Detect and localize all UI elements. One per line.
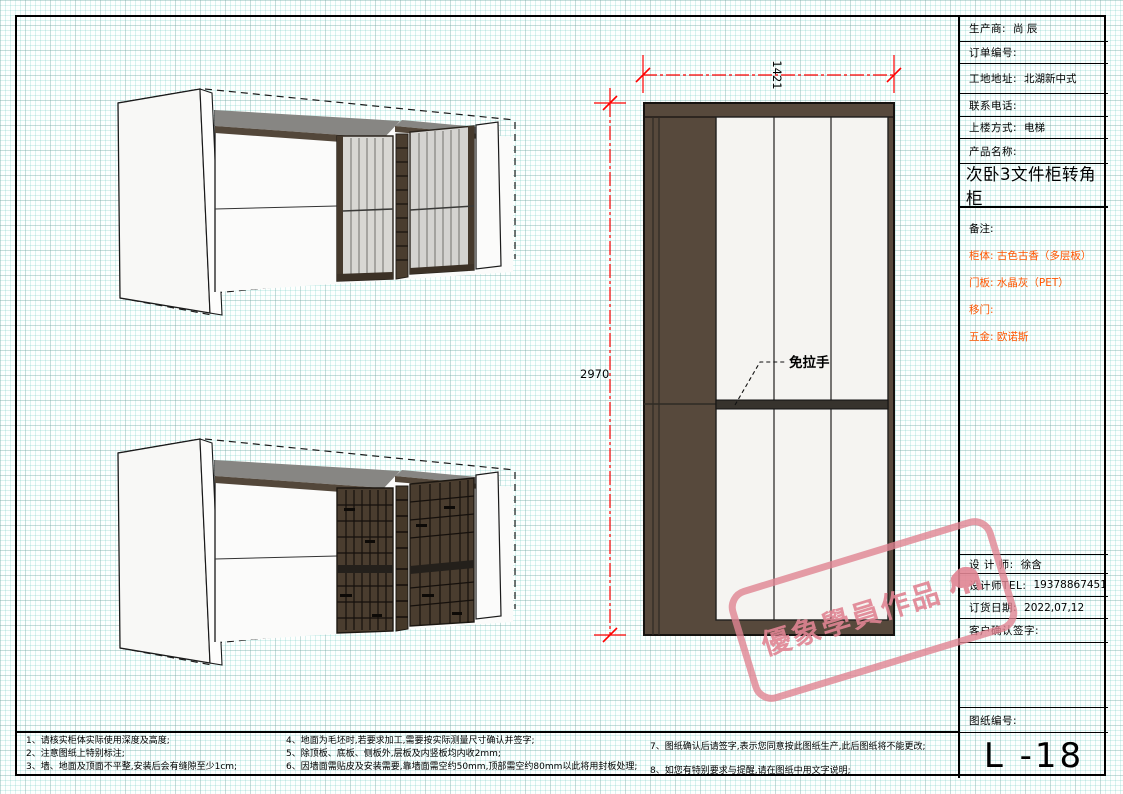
field-order-date: 订货日期: 2022,07,12 xyxy=(960,597,1108,619)
notes-divider-line xyxy=(15,731,960,733)
note-line: 5、除顶板、底板、侧板外,层板及内竖板均内收2mm; xyxy=(286,748,637,761)
field-designer-tel: 设计师TEL: 19378867451 xyxy=(960,574,1108,597)
note-line: 8、如您有特别要求与提醒,请在图纸中用文字说明; xyxy=(650,759,925,783)
dimension-lines: 2970 1421 xyxy=(560,40,930,665)
height-dimension: 2970 xyxy=(580,367,609,381)
notes-column-2: 4、地面为毛坯时,若要求加工,需要按实际测量尺寸确认并签字; 5、除顶板、底板、… xyxy=(286,735,637,773)
remark-door-panel: 门板: 水晶灰（PET） xyxy=(969,275,1102,290)
note-line: 4、地面为毛坯时,若要求加工,需要按实际测量尺寸确认并签字; xyxy=(286,735,637,748)
field-order-no: 订单编号: xyxy=(960,42,1108,64)
product-title: 次卧3文件柜转角柜 xyxy=(960,164,1108,208)
perspective-view-doors xyxy=(88,76,522,328)
field-site-address: 工地地址: 北湖新中式 xyxy=(960,64,1108,94)
field-phone: 联系电话: xyxy=(960,94,1108,117)
remarks-block: 备注: 柜体: 古色古香（多层板） 门板: 水晶灰（PET） 移门: 五金: 欧… xyxy=(960,208,1108,555)
title-block: 生产商: 尚 辰 订单编号: 工地地址: 北湖新中式 联系电话: 上楼方式: 电… xyxy=(958,15,1108,778)
notes-column-3: 7、图纸确认后请签字,表示您同意按此图纸生产,此后图纸将不能更改; 8、如您有特… xyxy=(650,735,925,783)
perspective-view-shelves xyxy=(88,426,522,678)
notes-column-1: 1、请核实柜体实际使用深度及高度; 2、注意图纸上特别标注; 3、墙、地面及顶面… xyxy=(26,735,237,773)
field-label: 联系电话: xyxy=(969,98,1017,113)
field-label: 上楼方式: xyxy=(969,120,1017,135)
width-dimension: 1421 xyxy=(770,60,784,89)
field-label: 订单编号: xyxy=(969,45,1017,60)
remark-sliding-door: 移门: xyxy=(969,302,1102,317)
signature-space xyxy=(960,643,1108,708)
note-line: 6、因墙面需贴皮及安装需要,靠墙面需空约50mm,顶部需空约80mm以此将用封板… xyxy=(286,761,637,774)
field-label: 工地地址: xyxy=(969,71,1017,86)
remark-hardware: 五金: 欧诺斯 xyxy=(969,329,1102,344)
field-manufacturer: 生产商: 尚 辰 xyxy=(960,15,1108,42)
remarks-label: 备注: xyxy=(969,221,1102,236)
note-line: 2、注意图纸上特别标注; xyxy=(26,748,237,761)
note-line: 3、墙、地面及顶面不平整,安装后会有缝隙至少1cm; xyxy=(26,761,237,774)
field-label: 生产商: xyxy=(969,21,1006,36)
field-designer: 设 计 师: 徐含 xyxy=(960,555,1108,574)
field-drawing-no: 图纸编号: xyxy=(960,708,1108,733)
field-value: 北湖新中式 xyxy=(1024,71,1077,86)
field-value: 电梯 xyxy=(1024,120,1045,135)
field-label: 产品名称: xyxy=(969,144,1017,159)
note-line: 7、图纸确认后请签字,表示您同意按此图纸生产,此后图纸将不能更改; xyxy=(650,735,925,759)
field-floor-access: 上楼方式: 电梯 xyxy=(960,117,1108,139)
drawing-number: L -18 xyxy=(960,733,1108,778)
field-customer-signature: 客户确认签字: xyxy=(960,619,1108,643)
cad-sheet: 免拉手 2970 1421 生产商: 尚 辰 订单编号: 工地地址: 北湖新中式 xyxy=(0,0,1123,794)
field-value: 尚 辰 xyxy=(1013,21,1037,36)
remark-cabinet: 柜体: 古色古香（多层板） xyxy=(969,248,1102,263)
note-line: 1、请核实柜体实际使用深度及高度; xyxy=(26,735,237,748)
